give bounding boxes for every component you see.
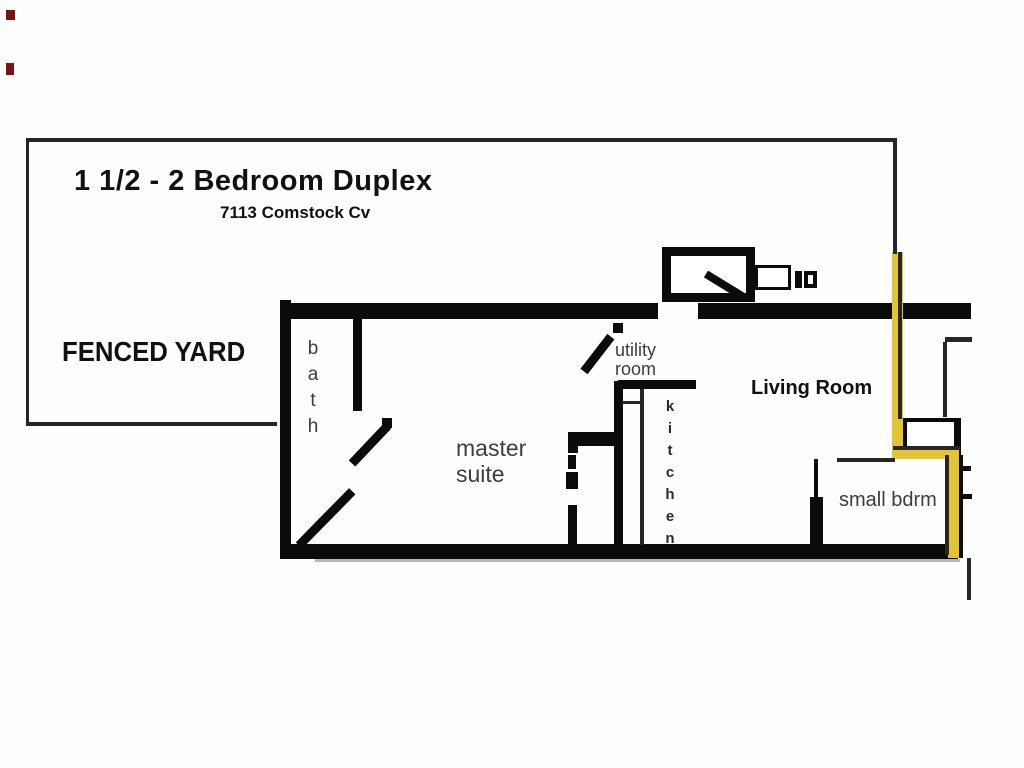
bath-door-leaf [349,422,392,466]
plan-title: 1 1/2 - 2 Bedroom Duplex [74,165,433,198]
yard-right-edge [893,140,897,254]
living-right-line [898,252,902,419]
bdrm-west-wall-thin [814,459,818,497]
red-artifact-upper [6,10,15,20]
yard-left-edge [26,138,29,426]
kitchen-west-wall [614,381,623,544]
fireplace-vent-bar [795,271,802,288]
living-room-label: Living Room [751,377,872,400]
bath-label: bath [302,336,324,440]
house-top-wall-left [280,303,658,319]
master-east-wall-nub [568,432,578,453]
kitchen-counter-line [640,389,644,545]
master-closet-dash-2 [566,472,578,489]
utility-room-label: utility room [615,341,656,379]
house-top-wall-right [698,303,971,319]
right-tick-upper [962,466,971,471]
window-line-vertical [943,342,947,417]
plan-address: 7113 Comstock Cv [220,203,370,223]
window-line-horizontal [945,337,972,342]
small-bdrm-label: small bdrm [839,489,937,512]
bottom-wall-shadow [315,559,960,562]
below-wall-stub-line [967,558,971,600]
yellow-h-top-line [893,446,960,450]
red-artifact-lower [6,63,14,75]
yard-bottom-edge [26,422,277,426]
fireplace-vent-outline [804,271,817,288]
floor-plan-page: 1 1/2 - 2 Bedroom Duplex 7113 Comstock C… [0,0,1024,768]
utility-door-leaf [580,333,614,373]
yellow-path-vertical-2 [948,448,959,558]
master-closet-dash-1 [568,455,576,469]
bdrm-top-line [837,458,895,462]
kitchen-shelf-line [622,401,641,404]
master-closet-solid [568,505,577,544]
utility-door-jamb [613,323,623,333]
bath-divider-wall [353,319,362,411]
bdrm-west-wall-thick [810,497,823,545]
fenced-yard-label: FENCED YARD [62,336,245,368]
house-left-wall [280,300,291,558]
house-bottom-wall [280,544,958,559]
right-tick-lower [962,494,972,499]
yard-top-edge [27,138,897,142]
fireplace-hearth-box [755,265,791,290]
yellow-v2-left-line [945,455,949,555]
master-door-leaf [296,488,355,548]
utility-bottom-wall [618,380,696,389]
kitchen-label: kitchen [661,396,679,550]
master-suite-label: master suite [456,435,526,487]
